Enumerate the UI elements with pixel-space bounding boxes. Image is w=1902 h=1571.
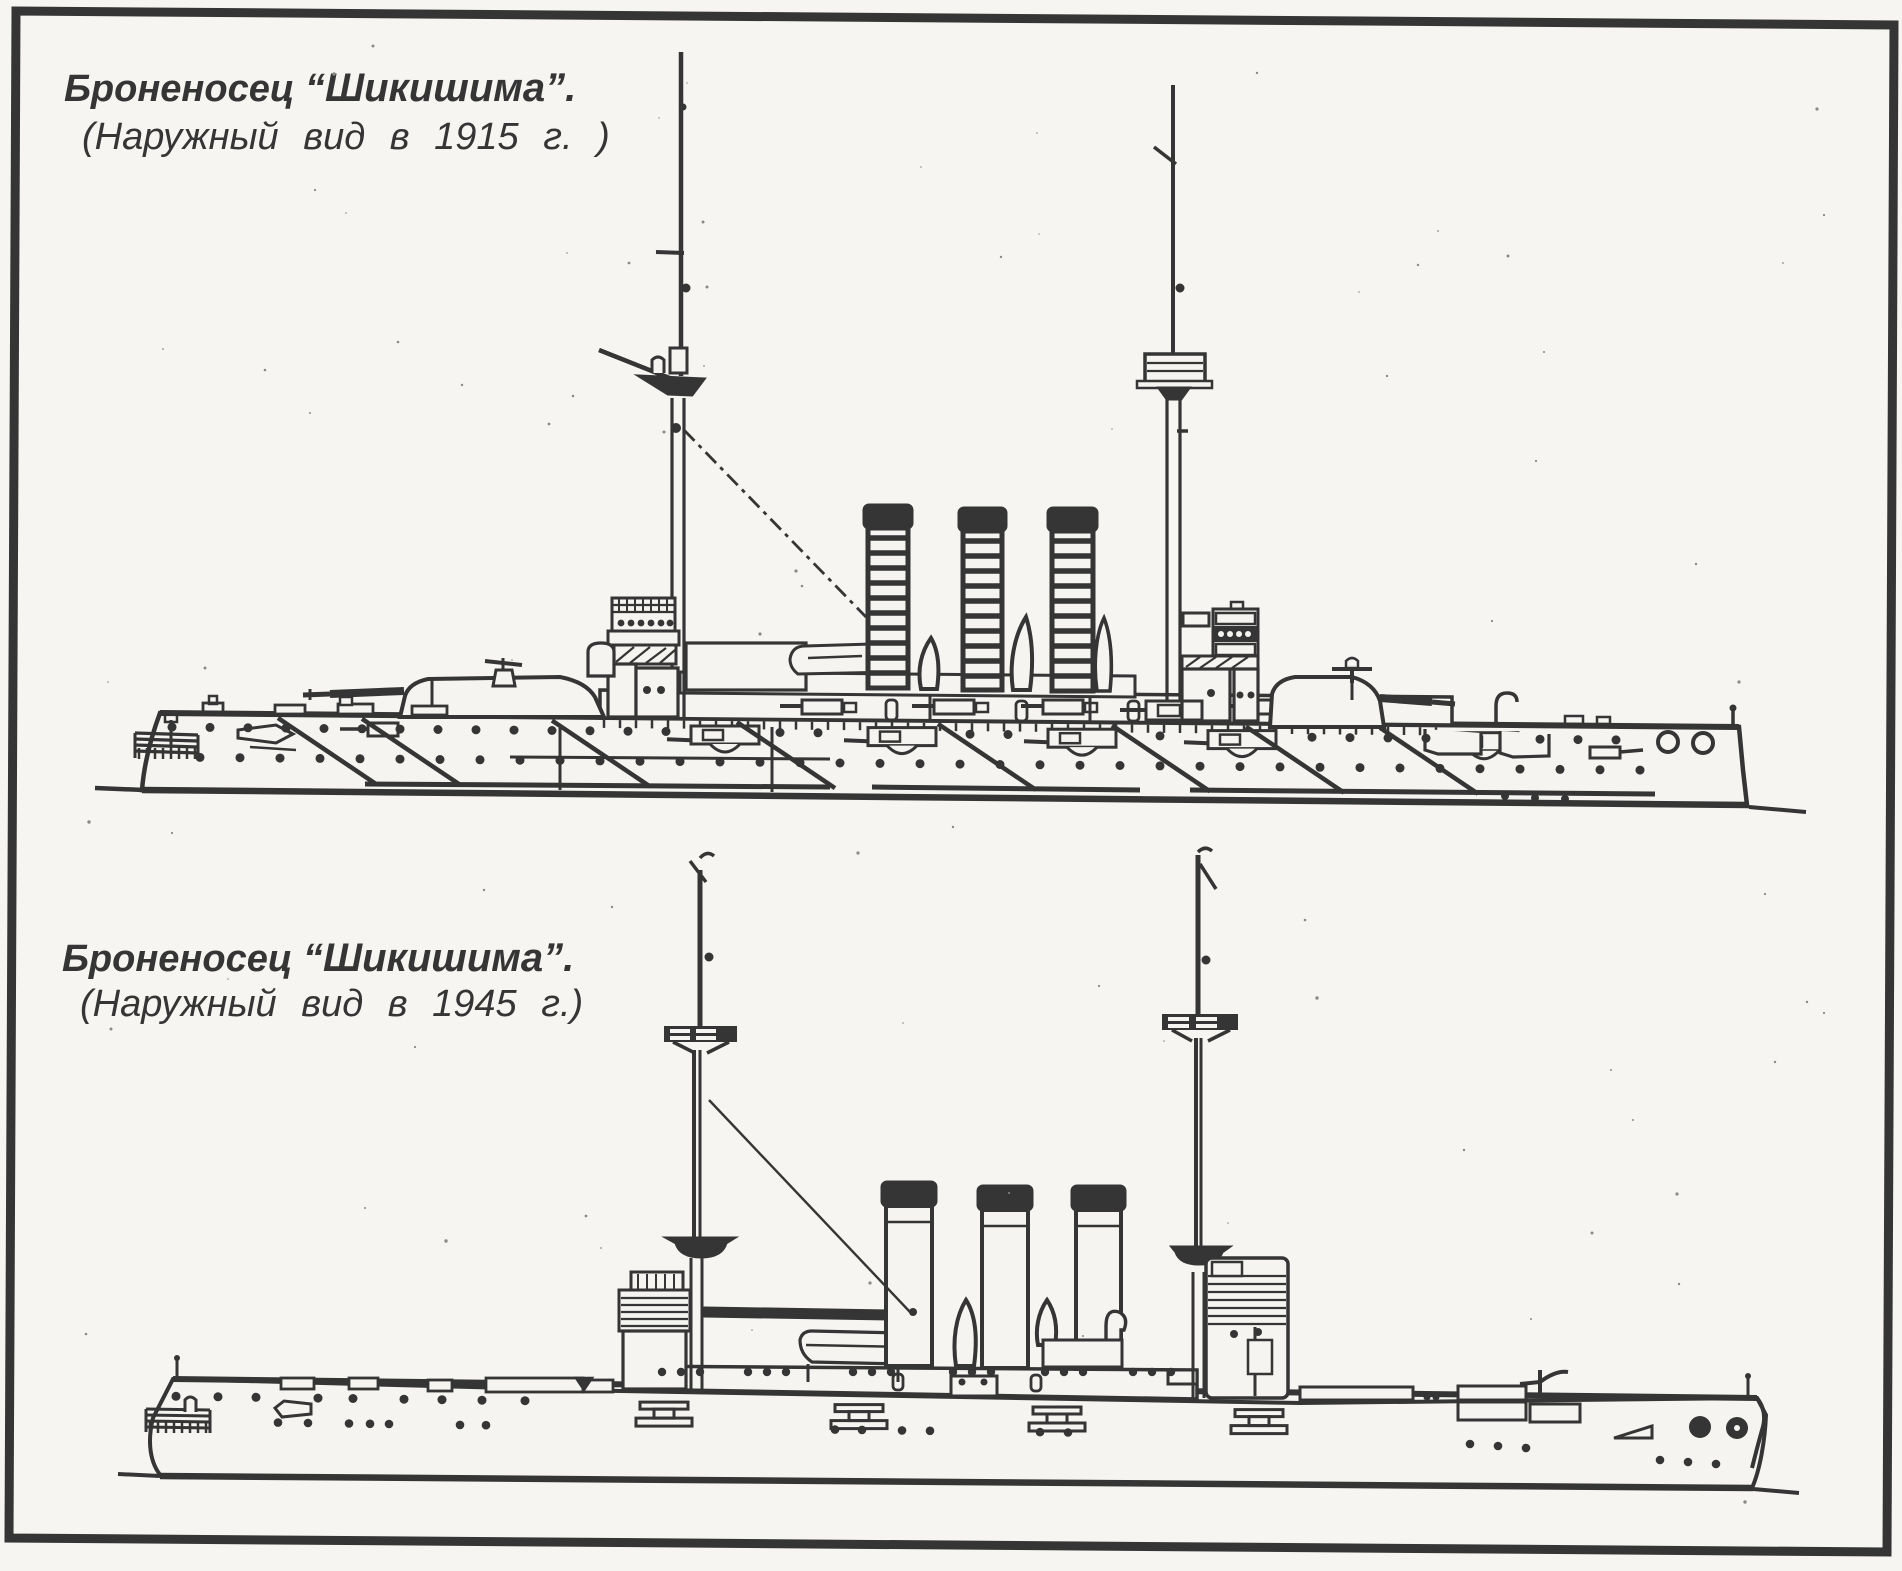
svg-text:Броненосец “Шикишима”.: Броненосец “Шикишима”. [64, 66, 576, 110]
svg-text:Броненосец “Шикишима”.: Броненосец “Шикишима”. [62, 936, 574, 980]
svg-text:(Наружный вид в 1945 г.): (Наружный вид в 1945 г.) [80, 983, 583, 1025]
svg-text:(Наружный вид в 1915 г. ): (Наружный вид в 1915 г. ) [82, 116, 610, 158]
